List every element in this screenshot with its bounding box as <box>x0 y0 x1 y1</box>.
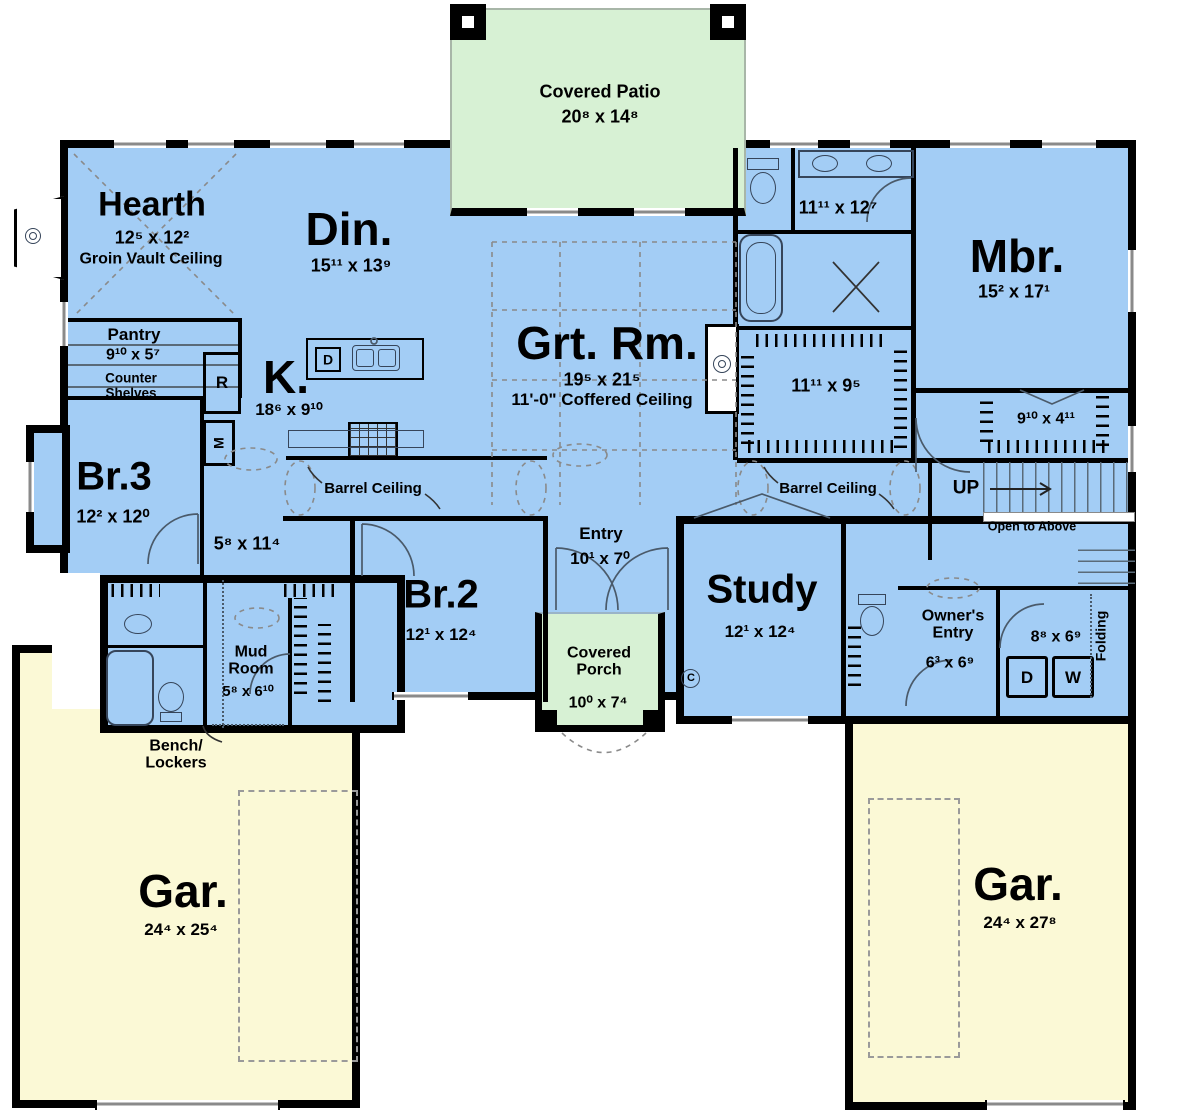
bedroom2-closet-rod <box>294 598 307 694</box>
great-room-note: 11'-0" Coffered Ceiling <box>511 391 692 409</box>
patio-post-left-core <box>462 16 474 28</box>
hearth-bay-dot <box>29 232 37 240</box>
mudroom-closet-rod <box>318 624 331 702</box>
wall-laundry-divider <box>996 586 1000 716</box>
window <box>26 460 34 514</box>
bedroom3-closet-rod <box>102 584 160 597</box>
stair-treads-lower <box>1078 540 1135 584</box>
kitchen-counter <box>288 430 424 448</box>
owners-entry-dims: 6³ x 6⁹ <box>926 654 975 671</box>
garage-left-label: Gar. <box>138 867 228 917</box>
wall-bath-hall <box>203 578 207 730</box>
window <box>1040 140 1098 148</box>
garage-door-opening <box>985 1100 1125 1110</box>
mud-room-dims: 5⁸ x 6¹⁰ <box>222 684 273 700</box>
wall-stairs-left <box>928 458 932 560</box>
master-closet-rod-left <box>741 352 754 444</box>
dishwasher-label: D <box>323 352 333 367</box>
bedroom3-label: Br.3 <box>76 455 152 498</box>
toilet-bowl <box>750 172 776 204</box>
window <box>632 208 687 216</box>
upper-closet-rod-right <box>1096 396 1109 446</box>
barrel-ceiling-right-label: Barrel Ceiling <box>779 481 877 497</box>
master-bedroom-label: Mbr. <box>970 232 1065 282</box>
wall-mbr-bottom <box>911 388 1136 393</box>
dining-label: Din. <box>306 205 393 255</box>
dining-dims: 15¹¹ x 13⁹ <box>311 256 392 275</box>
powder-toilet-bowl <box>860 606 884 636</box>
master-closet-rod-bottom <box>748 440 896 453</box>
wall-study-top <box>684 516 920 521</box>
laundry-dims: 8⁸ x 6⁹ <box>1031 628 1082 645</box>
open-to-above-label: Open to Above <box>988 520 1076 534</box>
covered-patio-label: Covered Patio <box>539 82 660 101</box>
wall-owners-entry-top <box>898 586 1136 590</box>
wall-mudroom-right <box>288 598 292 730</box>
master-bath-dims: 11¹¹ x 12⁷ <box>799 198 877 217</box>
master-closet-rod-top <box>756 334 884 347</box>
master-closet-dims: 11¹¹ x 9⁵ <box>791 376 861 395</box>
covered-porch-dims: 10⁰ x 7⁴ <box>569 694 628 711</box>
stair-treads-up <box>983 462 1135 512</box>
window <box>60 300 68 348</box>
window <box>268 140 328 148</box>
patio-post-right-core <box>722 16 734 28</box>
window <box>186 140 236 148</box>
wall-bedroom2-top <box>283 516 547 521</box>
fireplace-dot <box>718 360 726 368</box>
wall-study-right <box>841 516 846 716</box>
c-marker-label: C <box>687 673 695 685</box>
refrigerator-label: R <box>216 374 228 392</box>
master-tub-basin <box>746 242 776 314</box>
garage-right-label: Gar. <box>973 860 1063 910</box>
wall-tubroom-bottom <box>737 326 915 330</box>
garage-left-dims: 24⁴ x 25⁴ <box>144 921 218 939</box>
owners-entry-closet-rod <box>848 626 861 686</box>
owners-entry-label: Owner's Entry <box>901 608 1005 643</box>
study-label: Study <box>706 568 817 611</box>
hall-closet-rod <box>284 584 340 597</box>
bedroom3-dims: 12² x 12⁰ <box>76 507 149 526</box>
kitchen-label: K. <box>263 353 309 403</box>
dryer-label: D <box>1021 669 1033 687</box>
bath2-toilet-base <box>160 712 182 722</box>
toilet-tank <box>747 158 779 170</box>
barrel-ceiling-left-label: Barrel Ceiling <box>324 481 422 497</box>
kitchen-dims: 18⁶ x 9¹⁰ <box>255 401 323 419</box>
window <box>392 692 470 700</box>
upper-closet-dims: 9¹⁰ x 4¹¹ <box>1017 410 1075 427</box>
wall-bath-mid <box>100 645 204 648</box>
window <box>352 140 406 148</box>
stairs-up-label: UP <box>953 479 979 500</box>
entry-label: Entry <box>579 525 622 543</box>
bath2-toilet-bowl <box>158 682 184 712</box>
bench-strip <box>212 724 284 726</box>
folding-label: Folding <box>1093 611 1108 662</box>
floor-plan: Covered Patio 20⁸ x 14⁸ Hearth 12⁵ x 12²… <box>0 0 1200 1116</box>
powder-toilet-tank <box>858 594 886 605</box>
covered-porch-label: Covered Porch <box>546 645 652 680</box>
entry-dims: 10¹ x 7⁰ <box>570 550 630 568</box>
kitchen-sink-basin <box>378 349 396 367</box>
garage-left-bay-outline <box>238 790 358 1062</box>
wall-bedroom2-left <box>350 516 355 702</box>
pantry-dims: 9¹⁰ x 5⁷ <box>106 346 160 363</box>
garage-right-bay-outline <box>868 798 960 1058</box>
window <box>768 140 820 148</box>
pantry-note: Counter Shelves <box>86 371 176 400</box>
master-bedroom-dims: 15² x 17¹ <box>978 282 1050 301</box>
hearth-label: Hearth <box>98 187 206 224</box>
mud-room-label: Mud Room <box>215 644 287 679</box>
sink <box>866 155 892 172</box>
porch-post-right <box>643 710 659 726</box>
great-room-label: Grt. Rm. <box>516 319 697 369</box>
master-closet-rod-right <box>894 350 907 448</box>
garage-door-opening <box>95 1100 280 1110</box>
upper-closet-rod-left <box>980 396 993 442</box>
sink <box>812 155 838 172</box>
hall-dims: 5⁸ x 11⁴ <box>214 534 280 553</box>
garage-right-dims: 24⁴ x 27⁸ <box>983 914 1056 932</box>
wall-mbr-left <box>911 148 916 463</box>
microwave-label: M <box>211 437 226 449</box>
window <box>525 208 580 216</box>
study-dims: 12¹ x 12⁴ <box>725 623 796 641</box>
kitchen-sink-basin <box>356 349 374 367</box>
window <box>1128 248 1136 314</box>
window <box>848 140 892 148</box>
porch-post-left <box>541 710 557 726</box>
bedroom2-label: Br.2 <box>403 573 479 616</box>
window <box>948 140 1012 148</box>
bath2-tub <box>106 650 154 726</box>
pantry-label: Pantry <box>108 326 161 344</box>
upper-closet-rod-bottom <box>988 440 1106 453</box>
window <box>112 140 168 148</box>
window <box>730 716 810 724</box>
great-room-dims: 19⁵ x 21⁵ <box>564 370 641 389</box>
wall-pantry-top <box>64 318 240 322</box>
wall-toilet-room <box>791 148 795 232</box>
covered-patio-dims: 20⁸ x 14⁸ <box>561 107 638 126</box>
bench-lockers-label: Bench/ Lockers <box>126 738 226 773</box>
wall-corridor-top-left <box>286 456 547 460</box>
exterior-notch <box>52 573 100 709</box>
bedroom2-dims: 12¹ x 12⁴ <box>406 626 477 644</box>
washer-label: W <box>1065 669 1081 687</box>
hearth-note: Groin Vault Ceiling <box>79 250 222 267</box>
hearth-dims: 12⁵ x 12² <box>115 228 190 247</box>
bath2-sink <box>124 614 152 634</box>
